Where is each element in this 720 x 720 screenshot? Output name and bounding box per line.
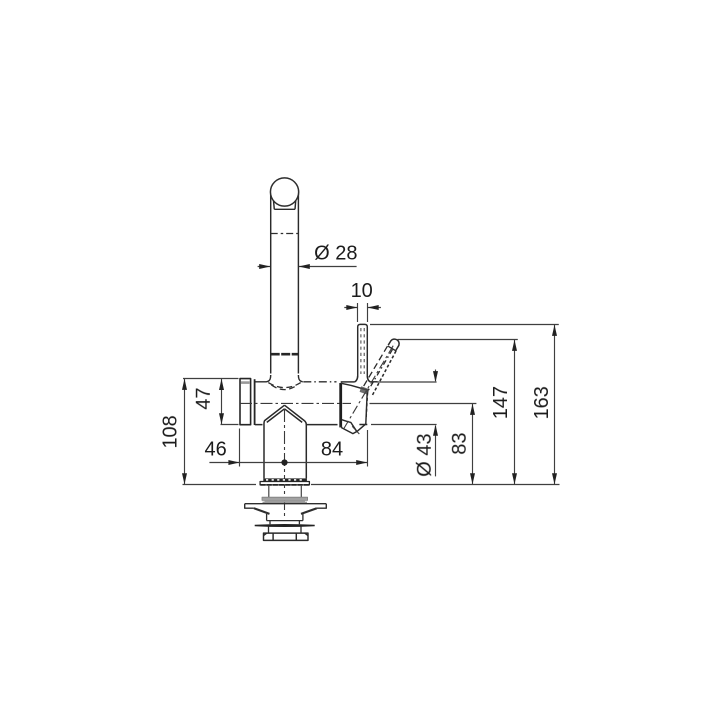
svg-text:Ø 28: Ø 28 — [314, 243, 357, 265]
svg-text:163: 163 — [531, 386, 553, 419]
svg-text:47: 47 — [193, 387, 215, 409]
svg-text:10: 10 — [351, 280, 373, 302]
svg-text:108: 108 — [160, 415, 182, 448]
svg-text:83: 83 — [449, 432, 471, 454]
svg-text:84: 84 — [321, 438, 343, 460]
svg-text:Ø 43: Ø 43 — [414, 434, 436, 477]
svg-text:46: 46 — [204, 439, 226, 461]
svg-text:147: 147 — [490, 386, 512, 419]
